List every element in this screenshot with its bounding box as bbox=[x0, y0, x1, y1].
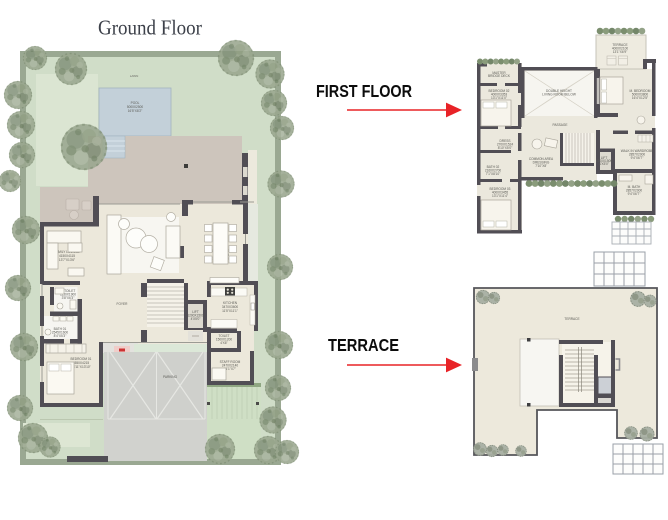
svg-text:13'1"X6'9": 13'1"X6'9" bbox=[613, 50, 627, 54]
svg-text:13'1"X11'4": 13'1"X11'4" bbox=[492, 194, 508, 198]
svg-text:LIVING ROOM BELOW: LIVING ROOM BELOW bbox=[542, 93, 576, 97]
svg-text:13'7"X13'6": 13'7"X13'6" bbox=[59, 258, 75, 262]
svg-text:8'10"X5'0": 8'10"X5'0" bbox=[498, 146, 512, 150]
svg-text:7'1"X8'10": 7'1"X8'10" bbox=[486, 172, 500, 176]
svg-text:16'4"X12'5": 16'4"X12'5" bbox=[632, 96, 648, 100]
svg-text:9'4"X6'7": 9'4"X6'7" bbox=[631, 156, 644, 160]
svg-text:TERRACE: TERRACE bbox=[564, 317, 579, 321]
svg-text:PASSAGE: PASSAGE bbox=[553, 123, 568, 127]
svg-text:FOYER: FOYER bbox=[117, 302, 129, 306]
svg-text:16'5"X8'2": 16'5"X8'2" bbox=[128, 109, 142, 113]
svg-text:13'1"X11'0": 13'1"X11'0" bbox=[491, 96, 507, 100]
svg-text:4'X6": 4'X6" bbox=[220, 341, 227, 345]
svg-text:TERRACE: TERRACE bbox=[328, 335, 399, 355]
svg-text:4'X5'0": 4'X5'0" bbox=[599, 162, 609, 166]
svg-text:8'4"X5'3": 8'4"X5'3" bbox=[54, 334, 67, 338]
svg-text:LAWN: LAWN bbox=[130, 74, 139, 78]
svg-text:11'5"X11'1": 11'5"X11'1" bbox=[222, 309, 238, 313]
svg-text:9'4"X6'7": 9'4"X6'7" bbox=[628, 192, 641, 196]
svg-text:PARKING: PARKING bbox=[163, 375, 178, 379]
svg-text:4'X5'0": 4'X5'0" bbox=[191, 317, 201, 321]
svg-text:FIRST FLOOR: FIRST FLOOR bbox=[316, 81, 412, 101]
svg-text:BRIDGE DECK: BRIDGE DECK bbox=[488, 74, 511, 78]
svg-text:3'8"X6'3": 3'8"X6'3" bbox=[62, 296, 75, 300]
svg-text:7'10"X8': 7'10"X8' bbox=[535, 164, 547, 168]
svg-text:Ground Floor: Ground Floor bbox=[98, 16, 202, 40]
